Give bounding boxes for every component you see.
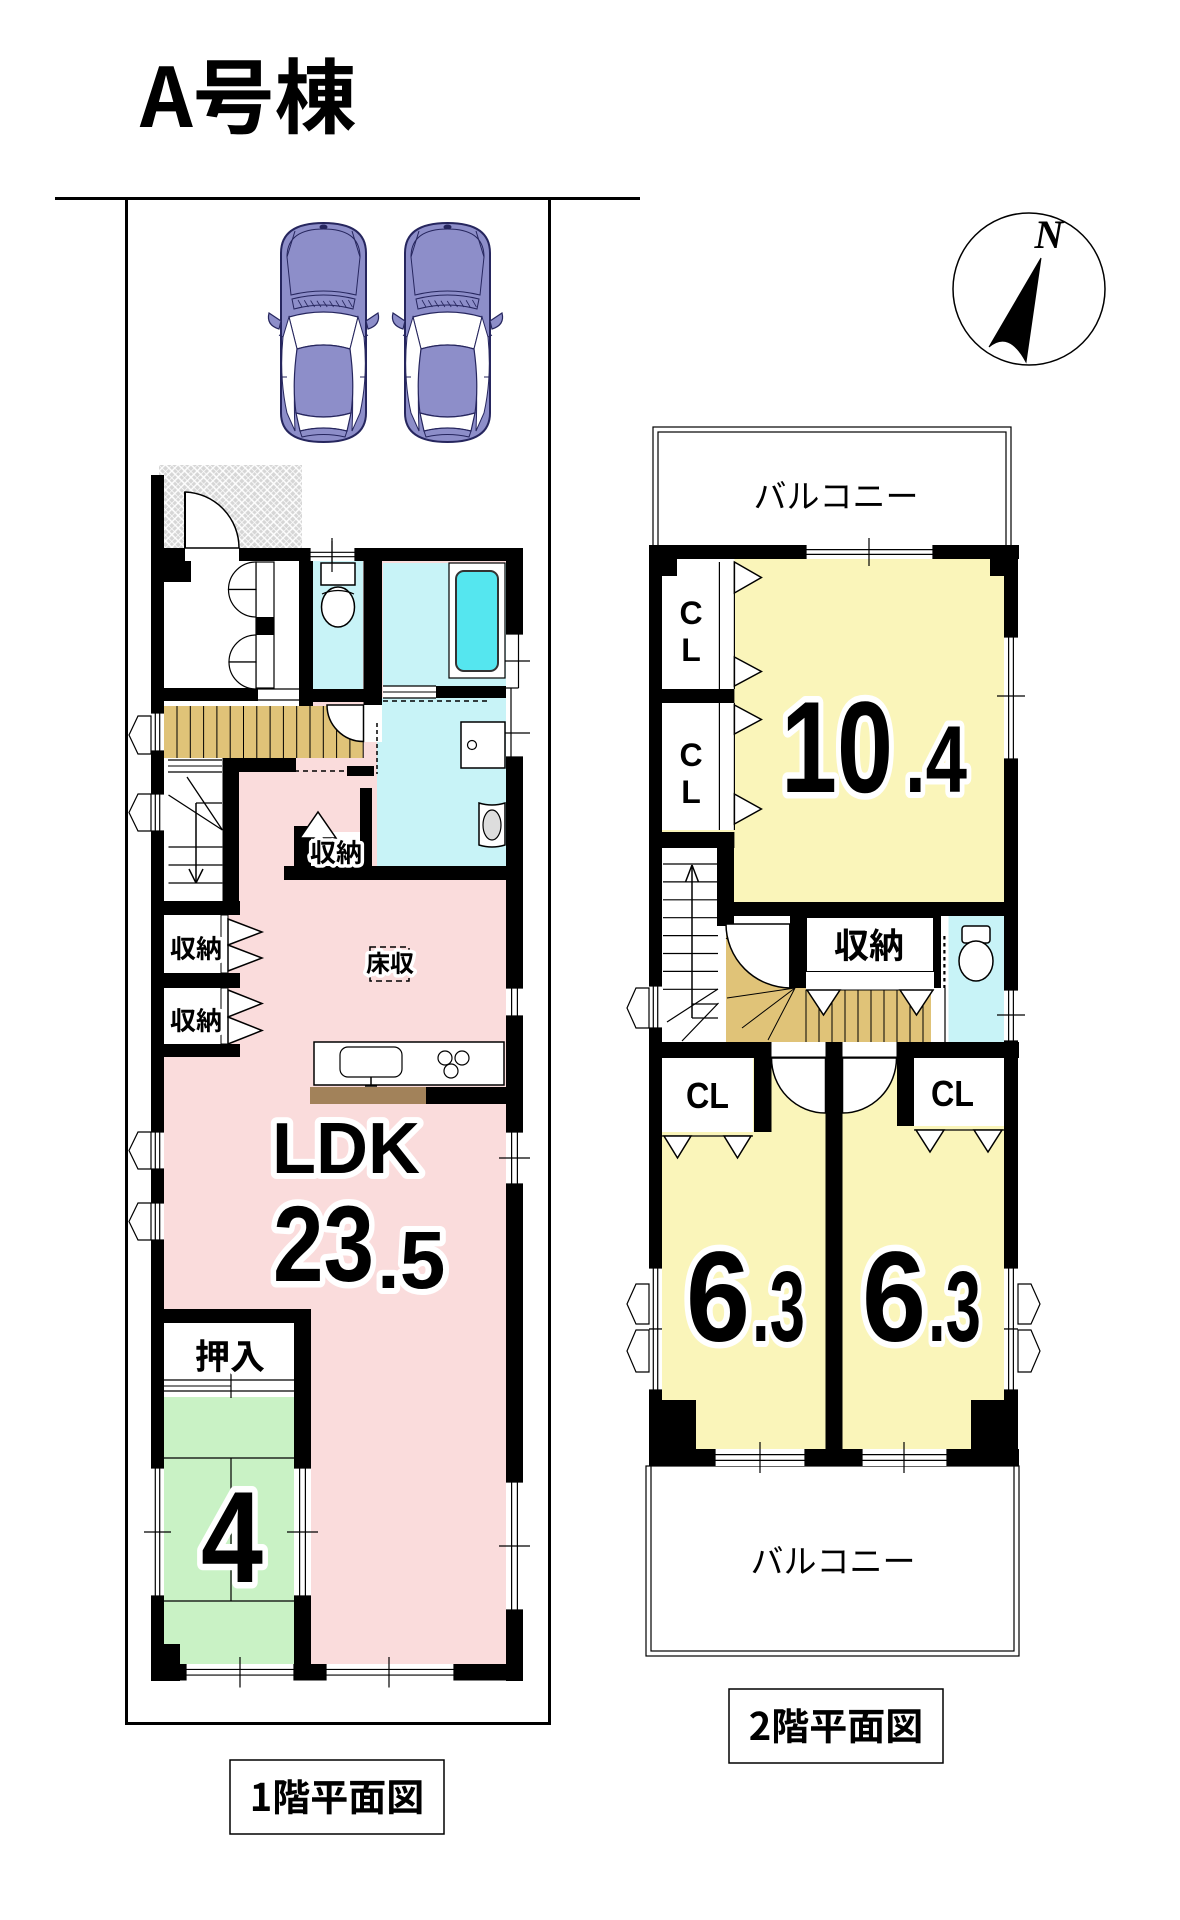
svg-text:L: L <box>681 632 701 668</box>
svg-text:CL: CL <box>686 1075 729 1116</box>
svg-text:L: L <box>681 774 701 810</box>
svg-text:CL: CL <box>931 1073 974 1114</box>
svg-text:6: 6 <box>686 1226 750 1369</box>
svg-text:LDK: LDK <box>272 1109 420 1189</box>
svg-text:.4: .4 <box>905 707 967 813</box>
svg-text:C: C <box>679 737 702 773</box>
svg-text:N: N <box>1034 212 1066 257</box>
svg-text:C: C <box>679 595 702 631</box>
svg-text:4: 4 <box>201 1464 263 1610</box>
svg-text:.3: .3 <box>752 1251 805 1363</box>
svg-text:10: 10 <box>781 674 893 820</box>
svg-text:23: 23 <box>273 1183 374 1304</box>
svg-text:.5: .5 <box>377 1215 445 1306</box>
svg-text:.3: .3 <box>928 1251 981 1363</box>
svg-text:6: 6 <box>862 1226 926 1369</box>
